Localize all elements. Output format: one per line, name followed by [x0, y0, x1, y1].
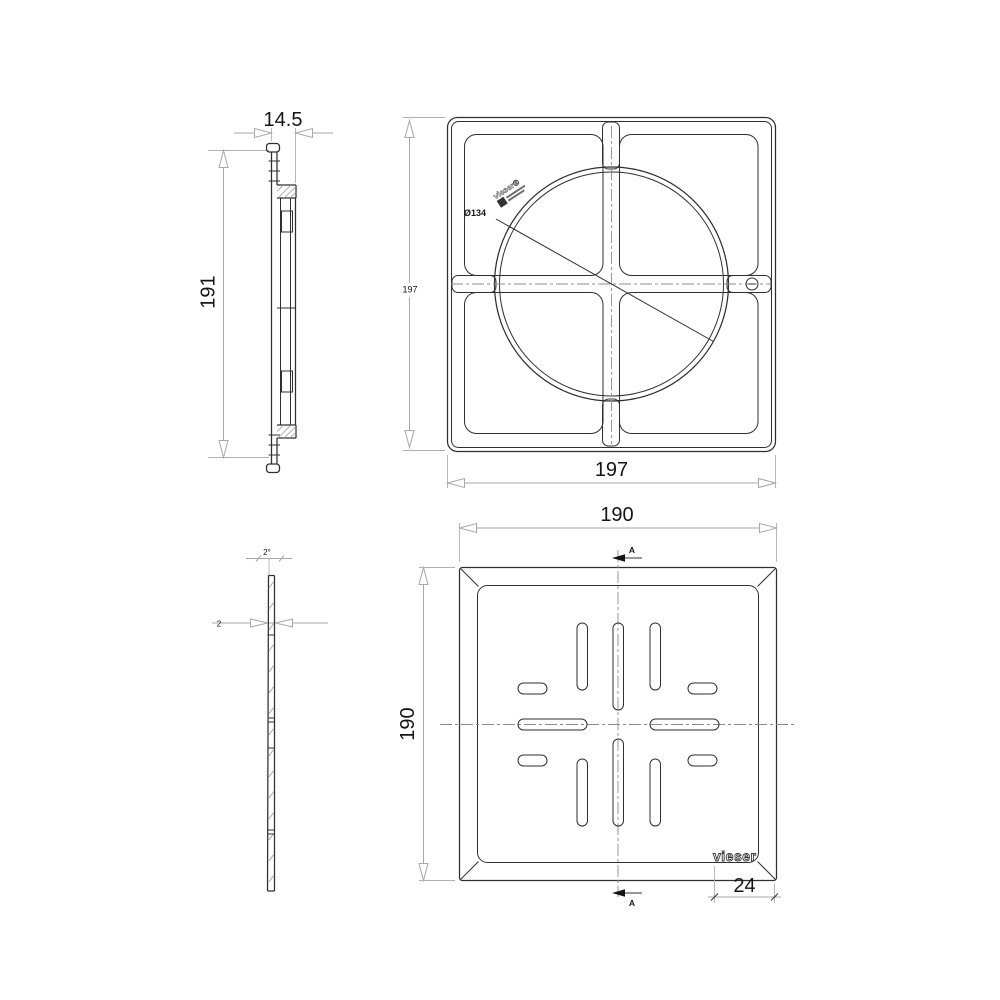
dim-2: 2: [217, 620, 222, 629]
grate-dimension-height: 190: [397, 568, 455, 881]
dim-190-left: 190: [397, 707, 419, 740]
frame-profile-outline: [267, 144, 297, 473]
frame-dimension-width: 197: [448, 455, 776, 488]
dim-190-top: 190: [600, 504, 633, 526]
dim-197-bottom: 197: [595, 459, 628, 481]
dim-24: 24: [733, 875, 755, 897]
draft-angle-dimension: 2°: [246, 548, 292, 575]
grate-front-view: 190 190: [395, 500, 820, 960]
technical-drawing-sheet: 14.5 191: [0, 0, 1000, 1000]
logo-width-dimension: 24: [708, 866, 781, 903]
thickness-dimension: 2: [212, 619, 328, 629]
dim-14-5: 14.5: [264, 109, 303, 131]
grate-side-view: 2° 2: [195, 530, 345, 950]
section-marker-top: A: [612, 545, 642, 562]
frame-front-view: Ø134 vieser® 197 197: [375, 95, 805, 500]
frame-side-dimension-height: 191: [198, 151, 270, 458]
frame-side-view: 14.5 191: [195, 95, 355, 490]
diameter-callout: Ø134: [464, 208, 714, 342]
section-label-a-top: A: [629, 545, 635, 555]
dim-191: 191: [198, 275, 220, 308]
dim-2deg: 2°: [263, 548, 271, 557]
dim-197-left: 197: [402, 285, 417, 295]
dim-diameter-134: Ø134: [464, 208, 486, 218]
grate-centerlines: [440, 550, 795, 897]
frame-side-dimension-width: 14.5: [234, 109, 333, 183]
vieser-logo: vieser: [713, 848, 757, 864]
vieser-logo-text: vieser: [713, 848, 757, 864]
frame-dimension-height: 197: [402, 118, 445, 451]
section-label-a-bottom: A: [629, 898, 635, 908]
vieser-stamp-logo: vieser®: [492, 176, 528, 208]
section-marker-bottom: A: [612, 889, 642, 908]
